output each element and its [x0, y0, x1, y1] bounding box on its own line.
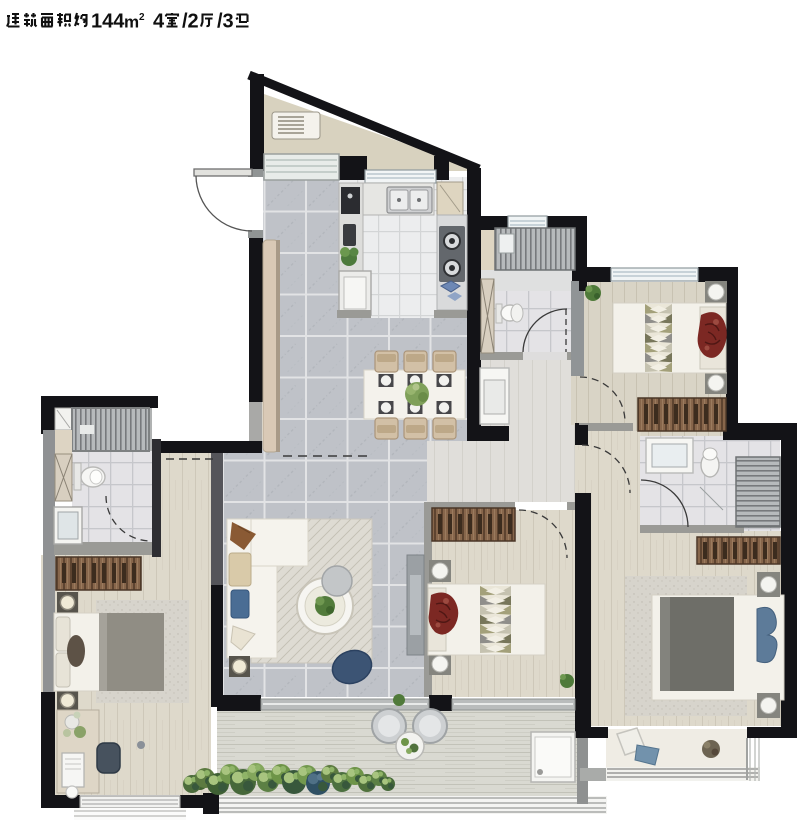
svg-text:4: 4	[153, 11, 165, 33]
svg-text:m: m	[124, 13, 139, 32]
svg-text:2: 2	[139, 12, 145, 23]
svg-text:/2: /2	[182, 11, 199, 33]
svg-text:/3: /3	[217, 11, 234, 33]
svg-text:144: 144	[91, 11, 125, 33]
